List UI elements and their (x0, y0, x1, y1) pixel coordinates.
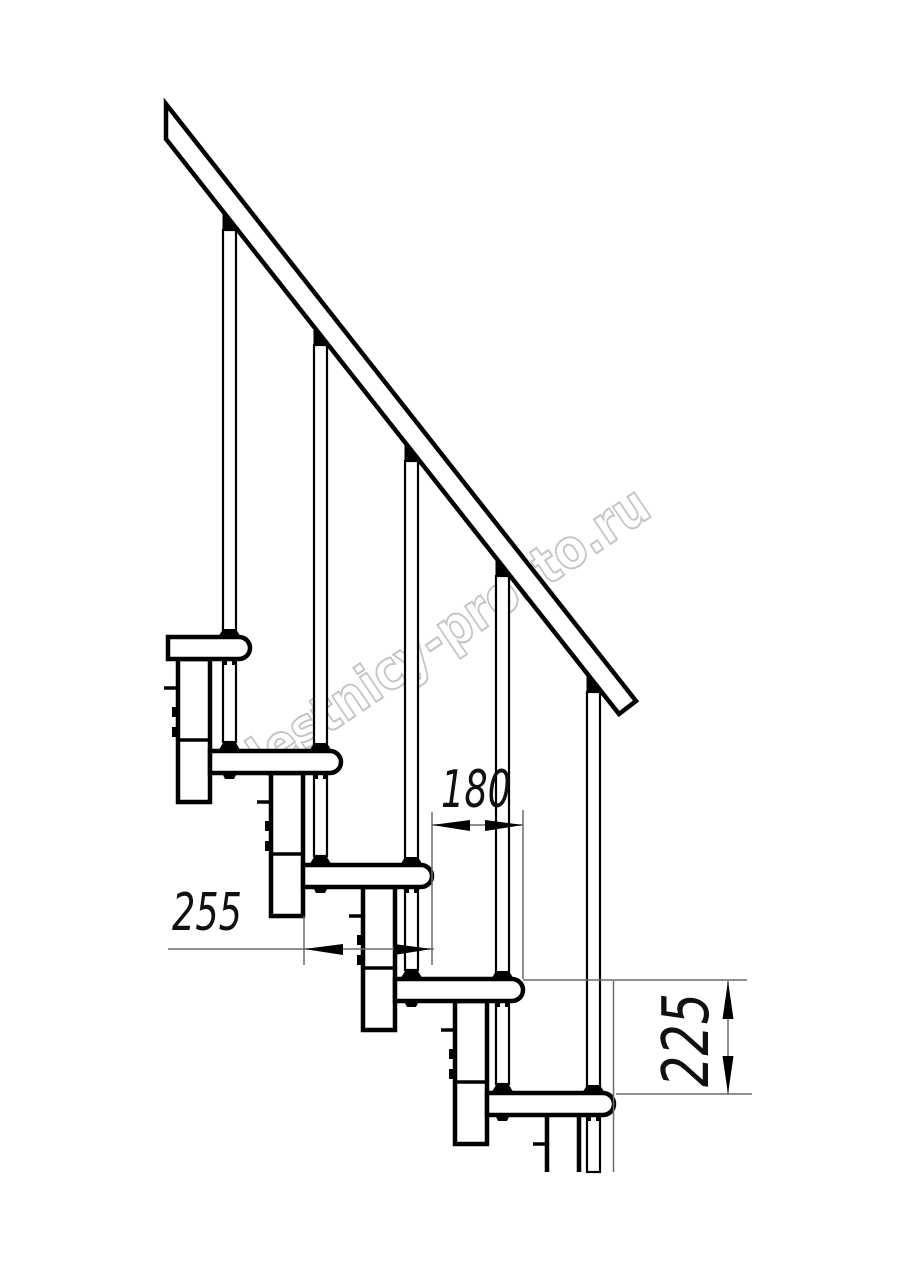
baluster-nut (222, 772, 238, 779)
module-clip (449, 1069, 456, 1079)
dimension-label-225: 225 (650, 993, 724, 1087)
baluster-foot (308, 857, 333, 867)
module-clip (265, 821, 272, 831)
tread-3 (303, 865, 432, 887)
baluster-collar (217, 629, 242, 639)
baluster-foot (217, 743, 242, 753)
tread-5 (487, 1093, 614, 1115)
dimension-arrow-left (432, 820, 470, 831)
module-clip (357, 935, 364, 945)
baluster-collar (399, 857, 424, 867)
baluster-collar (581, 1085, 606, 1095)
dimension-label-255: 255 (172, 883, 242, 943)
baluster-nut (313, 886, 329, 893)
dimension-arrow-down (723, 1056, 734, 1094)
baluster-nut (404, 1000, 420, 1007)
tread-4 (395, 979, 523, 1001)
baluster-collar (490, 971, 515, 981)
baluster-rod (405, 461, 418, 970)
baluster-nut (495, 1114, 511, 1121)
staircase-drawing: lestnicy-prosto.ru (0, 0, 914, 1280)
tread-2 (210, 751, 341, 773)
dimension-arrow-left (304, 944, 343, 955)
support-module-1 (164, 659, 210, 802)
baluster-rod (496, 576, 509, 1084)
module-clip (172, 727, 179, 737)
dimension-arrow-up (723, 981, 734, 1019)
module-clip (357, 955, 364, 965)
module-clip (449, 1049, 456, 1059)
staircase-drawing-page: lestnicy-prosto.ru (0, 0, 914, 1280)
support-module-3 (349, 887, 395, 1030)
baluster-rod (314, 345, 327, 856)
support-module-4 (441, 1001, 487, 1144)
tread-1 (168, 637, 250, 659)
dimension-label-180: 180 (441, 760, 511, 820)
baluster-rod (223, 230, 236, 742)
support-module-2 (257, 773, 303, 916)
baluster-foot (399, 971, 424, 981)
module-clip (265, 841, 272, 851)
balusters (223, 211, 601, 1172)
support-module-5 (533, 1115, 579, 1172)
module-clip (172, 707, 179, 717)
dimension-225: 225 (650, 981, 734, 1094)
baluster-foot (490, 1085, 515, 1095)
